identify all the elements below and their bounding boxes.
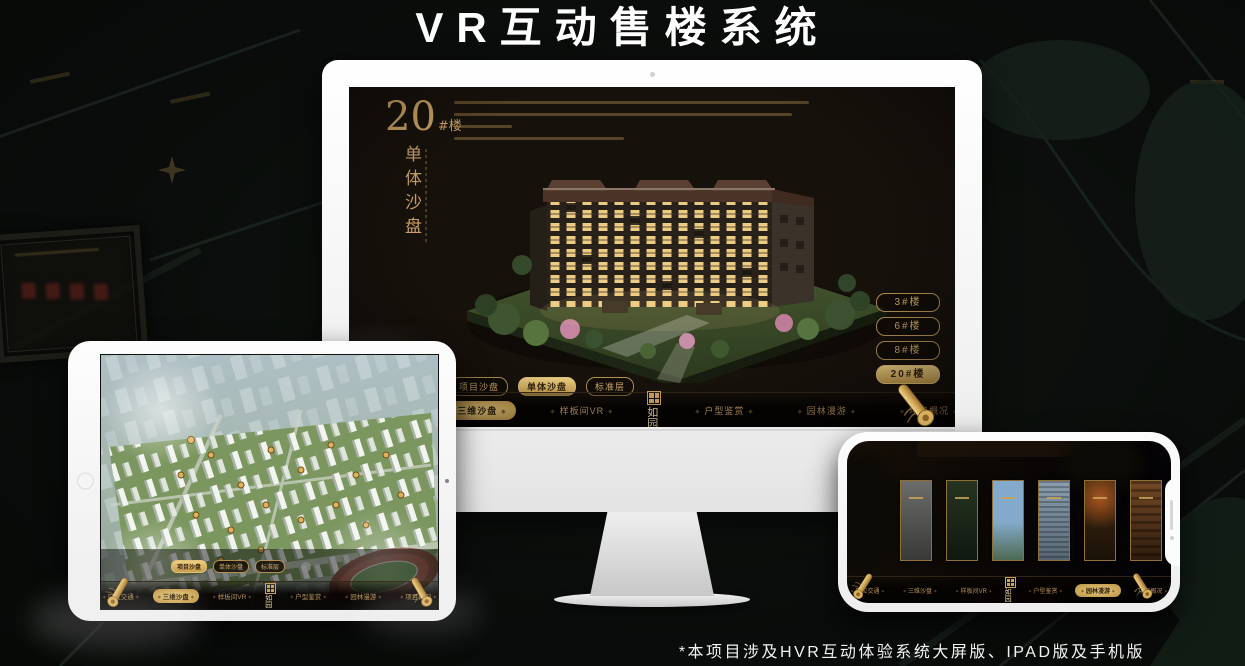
monitor-stand [590,512,714,596]
nav-item-garden-tour[interactable]: 园林漫游 [1075,584,1121,597]
panorama-card-strip [900,480,1162,561]
panorama-card[interactable] [946,480,978,561]
panorama-card[interactable] [992,480,1024,561]
home-button[interactable] [77,473,94,490]
page-subtitle-vertical: 单体沙盘 [399,145,424,241]
brand-logo-text: 如园 [647,407,661,427]
plaque-seal-char [69,283,84,300]
seal-icon [647,391,661,405]
camera-icon [445,479,449,483]
seal-icon [265,583,276,594]
panorama-card[interactable] [900,480,932,561]
panorama-card[interactable] [1130,480,1162,561]
page-title: VR互动售楼系统 [0,0,1245,56]
floor-button-6[interactable]: 6#楼 [876,317,940,336]
nav-item-floorplans[interactable]: 户型鉴赏 [285,589,331,603]
block-number: 20 [385,94,436,140]
nav-item-showroom-vr[interactable]: 样板间VR [950,584,998,597]
webcam-icon [650,72,655,77]
page-background: VR互动售楼系统 [0,0,1245,666]
description-line [454,113,792,116]
building-render[interactable] [452,143,897,383]
scene-foliage [847,451,899,581]
nav-item-3d-sandtable[interactable]: 三维沙盘 [897,584,943,597]
brand-logo[interactable]: 如园 [265,583,276,609]
fog-decor [360,588,480,634]
tablet-sandtable-tabs: 项目沙盘 单体沙盘 标准层 [171,560,285,573]
phone-notch [1165,478,1180,566]
brand-logo-text: 如园 [1005,589,1016,603]
brand-logo-text: 如园 [265,595,276,609]
block-title: 20#楼 [385,95,462,139]
nav-item-floorplans[interactable]: 户型鉴赏 [685,401,763,420]
tablet-device: 项目沙盘 单体沙盘 标准层 区位交通 三维沙盘 样板间VR 如园 户型鉴赏 园林… [68,341,456,621]
fog-decor [30,592,200,648]
plaque-seal-char [21,282,36,299]
description-line [454,101,809,104]
nav-item-showroom-vr[interactable]: 样板间VR [540,401,623,420]
tab-project-sandtable[interactable]: 项目沙盘 [171,560,207,573]
nav-item-floorplans[interactable]: 户型鉴赏 [1023,584,1069,597]
brand-logo[interactable]: 如园 [647,391,661,427]
plaque-seal-char [93,283,108,300]
tablet-screen: 项目沙盘 单体沙盘 标准层 区位交通 三维沙盘 样板间VR 如园 户型鉴赏 园林… [100,354,439,610]
phone-device: 区位交通 三维沙盘 样板间VR 如园 户型鉴赏 园林漫游 项目概况 [838,432,1180,612]
floor-button-3[interactable]: 3#楼 [876,293,940,312]
plaque-seal-char [45,283,60,300]
subtitle-english-decor [425,149,427,245]
compass-icon [158,156,186,184]
floor-button-8[interactable]: 8#楼 [876,341,940,360]
description-line [454,137,624,140]
phone-screen: 区位交通 三维沙盘 样板间VR 如园 户型鉴赏 园林漫游 项目概况 [847,441,1171,603]
nav-item-showroom-vr[interactable]: 样板间VR [208,589,257,603]
camera-icon [1170,536,1174,540]
speaker-icon [1170,500,1173,530]
tab-single-sandtable[interactable]: 单体沙盘 [213,560,249,573]
nav-item-garden-tour[interactable]: 园林漫游 [788,401,866,420]
panorama-card[interactable] [1038,480,1070,561]
footer-note: *本项目涉及HVR互动体验系统大屏版、IPAD版及手机版 [679,638,1145,662]
seal-icon [1005,577,1016,588]
tab-standard-floor[interactable]: 标准层 [255,560,285,573]
description-line [454,125,512,128]
panorama-card[interactable] [1084,480,1116,561]
brand-logo[interactable]: 如园 [1005,577,1016,603]
